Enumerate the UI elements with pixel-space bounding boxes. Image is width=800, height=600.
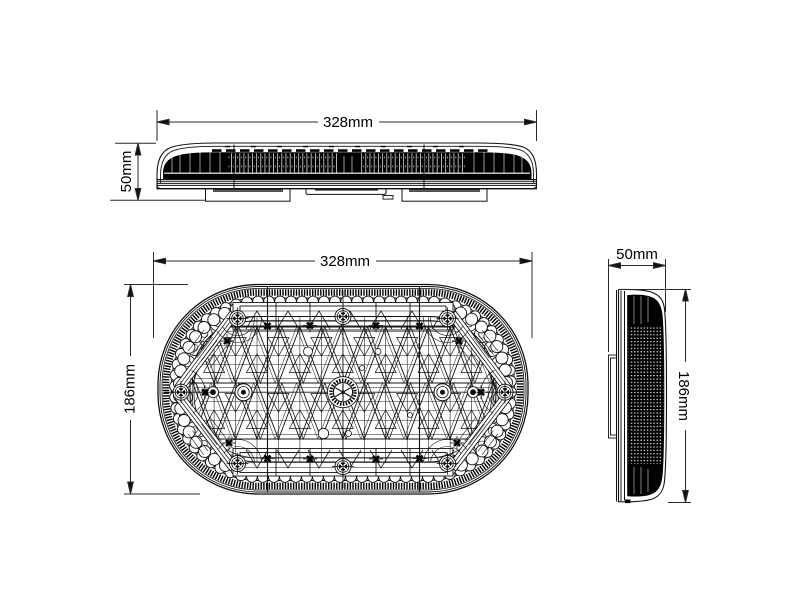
svg-text:186mm: 186mm <box>122 364 139 414</box>
svg-text:186mm: 186mm <box>675 371 692 421</box>
svg-text:328mm: 328mm <box>320 253 370 270</box>
svg-text:50mm: 50mm <box>616 246 658 263</box>
svg-text:328mm: 328mm <box>323 114 373 131</box>
svg-text:50mm: 50mm <box>118 151 135 193</box>
